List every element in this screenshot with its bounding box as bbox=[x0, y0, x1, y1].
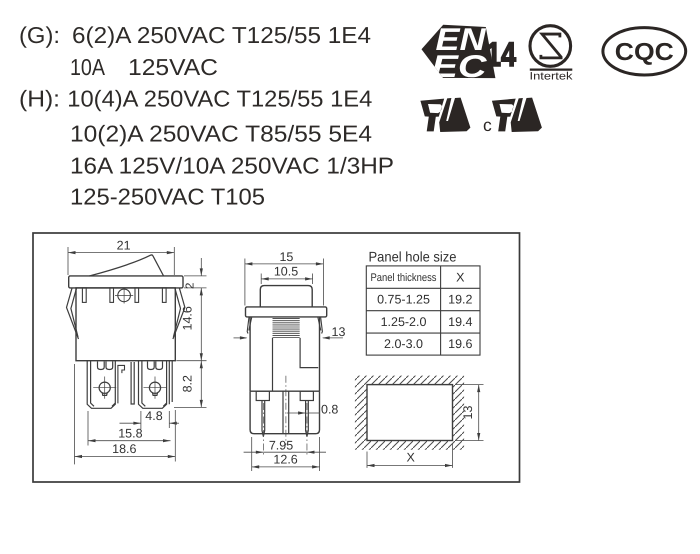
svg-text:X: X bbox=[456, 271, 465, 285]
svg-text:0.75-1.25: 0.75-1.25 bbox=[377, 293, 430, 307]
svg-text:21: 21 bbox=[117, 239, 131, 253]
svg-text:Panel hole size: Panel hole size bbox=[369, 249, 457, 265]
svg-text:Intertek: Intertek bbox=[530, 71, 574, 83]
svg-text:EC: EC bbox=[432, 48, 489, 84]
svg-text:13: 13 bbox=[332, 325, 346, 339]
svg-text:13: 13 bbox=[461, 406, 475, 420]
svg-text:2: 2 bbox=[185, 283, 197, 289]
svg-text:14: 14 bbox=[486, 36, 516, 74]
svg-text:8.2: 8.2 bbox=[180, 375, 194, 392]
svg-text:10(4)A 250VAC T125/55 1E4: 10(4)A 250VAC T125/55 1E4 bbox=[67, 86, 372, 112]
svg-text:125-250VAC T105: 125-250VAC T105 bbox=[70, 184, 265, 210]
svg-text:7.95: 7.95 bbox=[269, 439, 293, 453]
svg-text:18.6: 18.6 bbox=[112, 442, 136, 456]
svg-text:X: X bbox=[407, 451, 416, 465]
svg-text:Panel thickness: Panel thickness bbox=[371, 272, 437, 284]
svg-text:19.4: 19.4 bbox=[448, 315, 472, 329]
svg-text:0.8: 0.8 bbox=[321, 402, 338, 416]
svg-text:(H):: (H): bbox=[19, 86, 60, 112]
svg-text:19.6: 19.6 bbox=[448, 337, 472, 351]
svg-text:2.0-3.0: 2.0-3.0 bbox=[384, 337, 423, 351]
svg-text:15: 15 bbox=[279, 250, 293, 264]
svg-text:c: c bbox=[483, 115, 492, 135]
svg-text:10(2)A 250VAC T85/55 5E4: 10(2)A 250VAC T85/55 5E4 bbox=[70, 120, 372, 146]
svg-text:15.8: 15.8 bbox=[118, 426, 142, 440]
svg-text:19.2: 19.2 bbox=[448, 293, 472, 307]
svg-text:16A 125V/10A 250VAC 1/3HP: 16A 125V/10A 250VAC 1/3HP bbox=[70, 152, 394, 178]
svg-text:125VAC: 125VAC bbox=[128, 54, 218, 80]
svg-text:6(2)A 250VAC T125/55 1E4: 6(2)A 250VAC T125/55 1E4 bbox=[72, 22, 371, 48]
svg-text:12.6: 12.6 bbox=[273, 453, 297, 467]
svg-text:10A: 10A bbox=[70, 54, 106, 80]
svg-text:14.6: 14.6 bbox=[180, 306, 194, 330]
svg-text:(G):: (G): bbox=[19, 22, 60, 48]
svg-text:1.25-2.0: 1.25-2.0 bbox=[381, 315, 427, 329]
svg-text:10.5: 10.5 bbox=[274, 264, 298, 278]
svg-text:4.8: 4.8 bbox=[145, 409, 162, 423]
svg-text:CQC: CQC bbox=[615, 39, 674, 66]
